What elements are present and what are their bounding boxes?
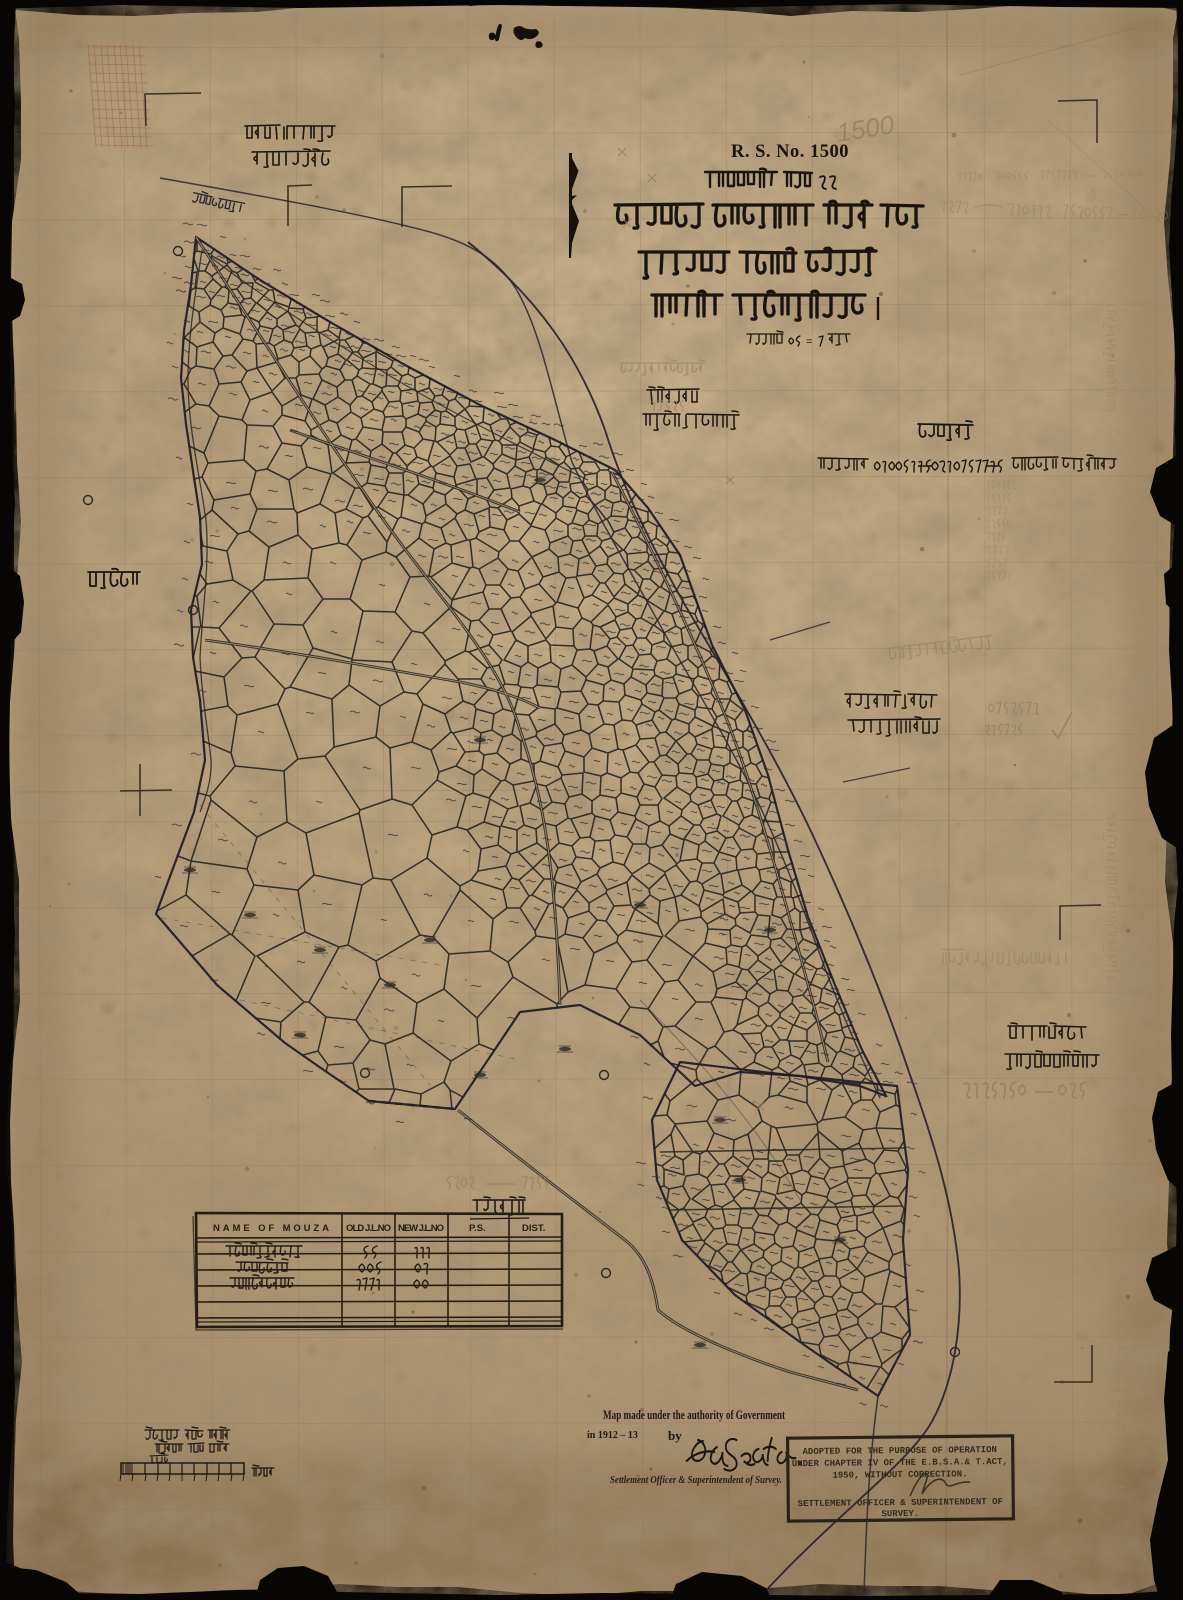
svg-text:ADOPTED FOR THE PURPOSE OF OPE: ADOPTED FOR THE PURPOSE OF OPERATION — [802, 1445, 997, 1457]
svg-text:Settlement Officer & Superinte: Settlement Officer & Superintendent of S… — [610, 1474, 782, 1486]
svg-text:P.S.: P.S. — [469, 1223, 486, 1234]
svg-text:DIST.: DIST. — [522, 1223, 545, 1234]
svg-text:OLD J.L.NO: OLD J.L.NO — [346, 1223, 391, 1234]
svg-text:SURVEY.: SURVEY. — [881, 1509, 919, 1519]
svg-text:1950, WITHOUT CORRECTION.: 1950, WITHOUT CORRECTION. — [832, 1469, 967, 1480]
svg-text:by: by — [668, 1428, 682, 1443]
svg-text:R. S. No. 1500: R. S. No. 1500 — [731, 142, 849, 162]
svg-text:in 1912 – 13: in 1912 – 13 — [587, 1430, 638, 1441]
svg-text:=: = — [806, 336, 812, 348]
svg-text:Map made under the authority o: Map made under the authority of Governme… — [603, 1407, 785, 1422]
svg-text:25-11-12 7-12-12 24-12-12 7: 25-11-12 7-12-12 24-12-12 7-1-13 — [1115, 1319, 1129, 1580]
svg-text:NEW J.L.NO: NEW J.L.NO — [398, 1223, 444, 1234]
svg-text:NAME OF MOUZA: NAME OF MOUZA — [213, 1223, 331, 1234]
